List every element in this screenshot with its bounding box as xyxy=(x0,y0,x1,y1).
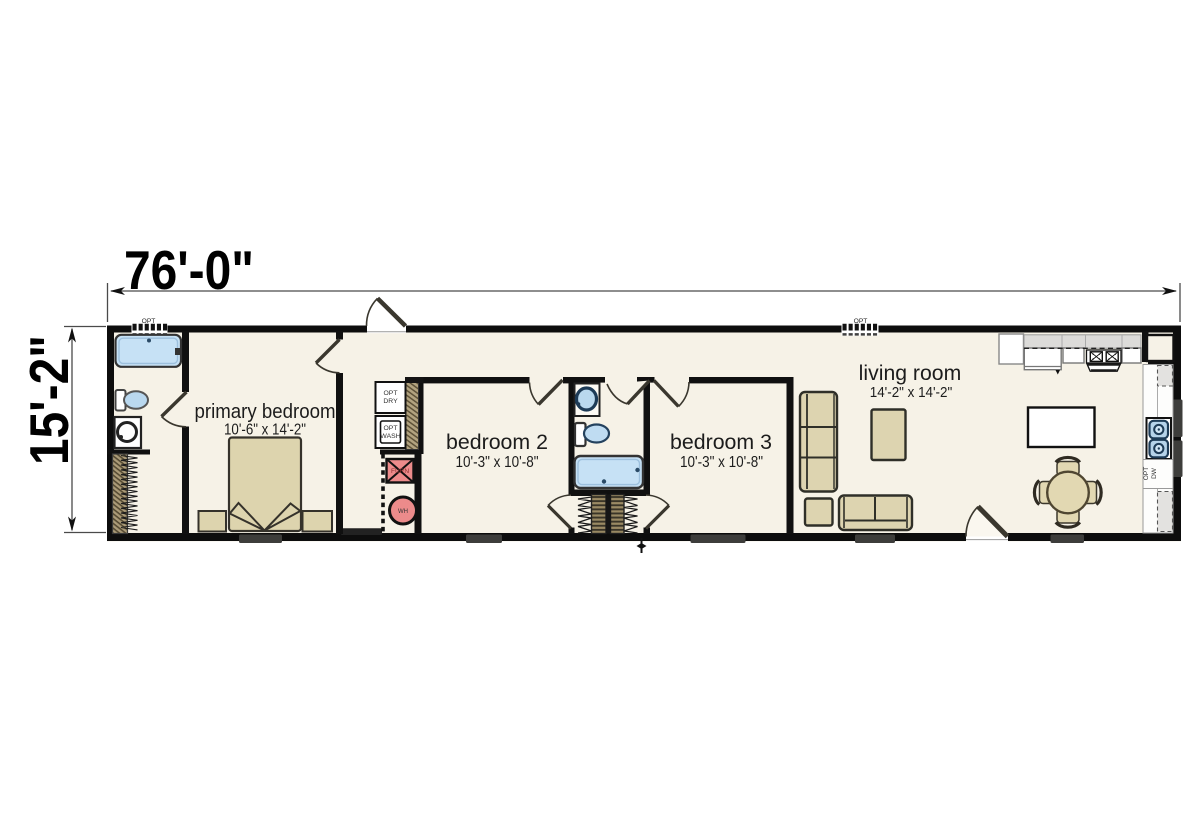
svg-text:15'-2": 15'-2" xyxy=(18,335,80,465)
svg-text:OPT: OPT xyxy=(142,318,156,325)
svg-text:WH: WH xyxy=(398,509,408,515)
svg-text:76'-0": 76'-0" xyxy=(124,239,254,301)
svg-text:bedroom 3: bedroom 3 xyxy=(670,430,772,454)
svg-text:OPT: OPT xyxy=(854,318,868,325)
svg-text:bedroom 2: bedroom 2 xyxy=(446,430,548,454)
svg-text:10'-3" x 10'-8": 10'-3" x 10'-8" xyxy=(680,454,763,471)
svg-text:14'-2" x 14'-2": 14'-2" x 14'-2" xyxy=(870,385,953,401)
svg-text:primary bedroom: primary bedroom xyxy=(195,400,336,423)
svg-text:OPT: OPT xyxy=(384,425,398,432)
svg-text:FURN: FURN xyxy=(391,468,409,475)
svg-text:WASH: WASH xyxy=(380,433,400,440)
svg-text:OPT: OPT xyxy=(384,390,398,397)
svg-text:10'-6" x 14'-2": 10'-6" x 14'-2" xyxy=(224,422,306,439)
svg-text:living room: living room xyxy=(859,362,962,385)
svg-text:10'-3" x 10'-8": 10'-3" x 10'-8" xyxy=(456,454,539,471)
svg-text:OPT: OPT xyxy=(1143,467,1150,480)
svg-text:DRY: DRY xyxy=(383,398,398,405)
svg-text:DW: DW xyxy=(1151,467,1158,479)
